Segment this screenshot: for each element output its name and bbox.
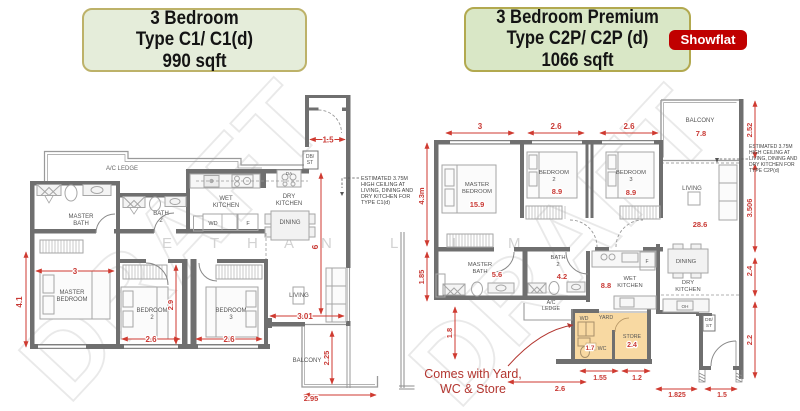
svg-text:1.55: 1.55 xyxy=(593,375,607,382)
svg-text:3: 3 xyxy=(629,177,632,183)
svg-text:TYPE C2P(d): TYPE C2P(d) xyxy=(749,168,780,174)
svg-text:LIVING: LIVING xyxy=(682,186,702,192)
svg-text:BATH: BATH xyxy=(472,269,487,275)
svg-text:WET: WET xyxy=(624,276,637,282)
svg-text:BATH: BATH xyxy=(550,255,565,261)
svg-text:2.6: 2.6 xyxy=(223,335,235,344)
svg-text:3: 3 xyxy=(478,122,483,131)
svg-text:BEDROOM: BEDROOM xyxy=(215,308,246,314)
svg-text:BEDROOM: BEDROOM xyxy=(136,308,167,314)
svg-text:KITCHEN: KITCHEN xyxy=(276,201,302,207)
svg-text:6: 6 xyxy=(310,244,320,249)
svg-text:7.8: 7.8 xyxy=(696,129,706,138)
svg-text:DINING: DINING xyxy=(676,259,697,265)
svg-text:STORE: STORE xyxy=(623,334,642,340)
svg-text:1.2: 1.2 xyxy=(632,375,642,382)
svg-text:2.6: 2.6 xyxy=(145,335,157,344)
svg-text:4.2: 4.2 xyxy=(557,272,567,281)
svg-text:3.506: 3.506 xyxy=(745,199,754,218)
svg-text:BATH: BATH xyxy=(73,221,89,227)
svg-text:ST: ST xyxy=(307,160,313,166)
svg-text:2.4: 2.4 xyxy=(627,342,637,349)
svg-text:2.95: 2.95 xyxy=(304,394,319,403)
svg-text:DINING: DINING xyxy=(280,220,301,226)
svg-text:DRY: DRY xyxy=(682,280,694,286)
svg-text:LEDGE: LEDGE xyxy=(542,306,560,312)
svg-text:WC: WC xyxy=(598,346,607,352)
svg-text:OH: OH xyxy=(682,304,689,309)
svg-text:A/C LEDGE: A/C LEDGE xyxy=(106,166,138,172)
svg-text:8.9: 8.9 xyxy=(626,188,636,197)
svg-text:N: N xyxy=(321,235,332,252)
svg-text:2.9: 2.9 xyxy=(166,300,175,310)
svg-text:MASTER: MASTER xyxy=(468,262,492,268)
svg-text:BEDROOM: BEDROOM xyxy=(462,189,492,195)
svg-text:MASTER: MASTER xyxy=(465,182,489,188)
svg-text:KITCHEN: KITCHEN xyxy=(213,203,239,209)
svg-text:L: L xyxy=(390,235,398,252)
svg-text:DB/: DB/ xyxy=(705,317,714,323)
svg-text:1.7: 1.7 xyxy=(586,345,595,352)
svg-text:2.2: 2.2 xyxy=(745,335,754,345)
svg-text:2: 2 xyxy=(552,177,555,183)
svg-text:DA: DA xyxy=(286,171,292,176)
svg-text:1.825: 1.825 xyxy=(668,392,686,399)
svg-text:MASTER: MASTER xyxy=(59,290,85,296)
svg-text:TYPE C1(d): TYPE C1(d) xyxy=(361,200,390,206)
svg-text:Comes with Yard,: Comes with Yard, xyxy=(424,367,522,381)
svg-text:BALCONY: BALCONY xyxy=(293,358,322,364)
svg-text:8.8: 8.8 xyxy=(601,281,611,290)
svg-text:BEDROOM: BEDROOM xyxy=(56,297,87,303)
svg-text:KITCHEN: KITCHEN xyxy=(617,283,642,289)
svg-text:WD: WD xyxy=(580,316,589,322)
svg-text:2.6: 2.6 xyxy=(623,122,635,131)
svg-text:3.01: 3.01 xyxy=(297,312,313,321)
svg-text:2.52: 2.52 xyxy=(745,123,754,138)
svg-text:BEDROOM: BEDROOM xyxy=(539,170,569,176)
svg-text:DRAFT: DRAFT xyxy=(387,62,739,411)
svg-text:1.8: 1.8 xyxy=(445,328,454,338)
svg-text:MASTER: MASTER xyxy=(68,214,94,220)
svg-text:5.6: 5.6 xyxy=(492,270,502,279)
svg-text:28.6: 28.6 xyxy=(693,220,708,229)
svg-text:WC & Store: WC & Store xyxy=(440,382,506,396)
svg-text:3: 3 xyxy=(73,267,78,276)
svg-text:ST: ST xyxy=(706,323,712,329)
svg-text:2.25: 2.25 xyxy=(322,351,331,366)
svg-text:LIVING: LIVING xyxy=(289,293,309,299)
svg-text:8.9: 8.9 xyxy=(552,187,562,196)
svg-text:T: T xyxy=(210,235,219,252)
svg-text:4.1: 4.1 xyxy=(15,296,24,308)
svg-text:DRY: DRY xyxy=(283,194,296,200)
svg-text:1.5: 1.5 xyxy=(322,136,334,145)
svg-text:2.6: 2.6 xyxy=(550,122,562,131)
svg-text:2: 2 xyxy=(556,262,559,268)
svg-text:WET: WET xyxy=(219,196,233,202)
svg-text:H: H xyxy=(247,235,258,252)
svg-text:4.3m: 4.3m xyxy=(417,187,426,204)
svg-text:BALCONY: BALCONY xyxy=(686,118,715,124)
svg-text:1.85: 1.85 xyxy=(417,270,426,285)
svg-text:WD: WD xyxy=(208,221,217,227)
svg-text:2.6: 2.6 xyxy=(555,384,565,393)
svg-text:15.9: 15.9 xyxy=(470,200,485,209)
svg-text:KITCHEN: KITCHEN xyxy=(675,287,700,293)
svg-text:F: F xyxy=(645,259,648,265)
svg-text:1.5: 1.5 xyxy=(717,392,727,399)
svg-text:BEDROOM: BEDROOM xyxy=(616,170,646,176)
svg-text:YARD: YARD xyxy=(599,315,613,321)
svg-text:E: E xyxy=(162,235,172,252)
svg-text:2.4: 2.4 xyxy=(745,265,754,276)
